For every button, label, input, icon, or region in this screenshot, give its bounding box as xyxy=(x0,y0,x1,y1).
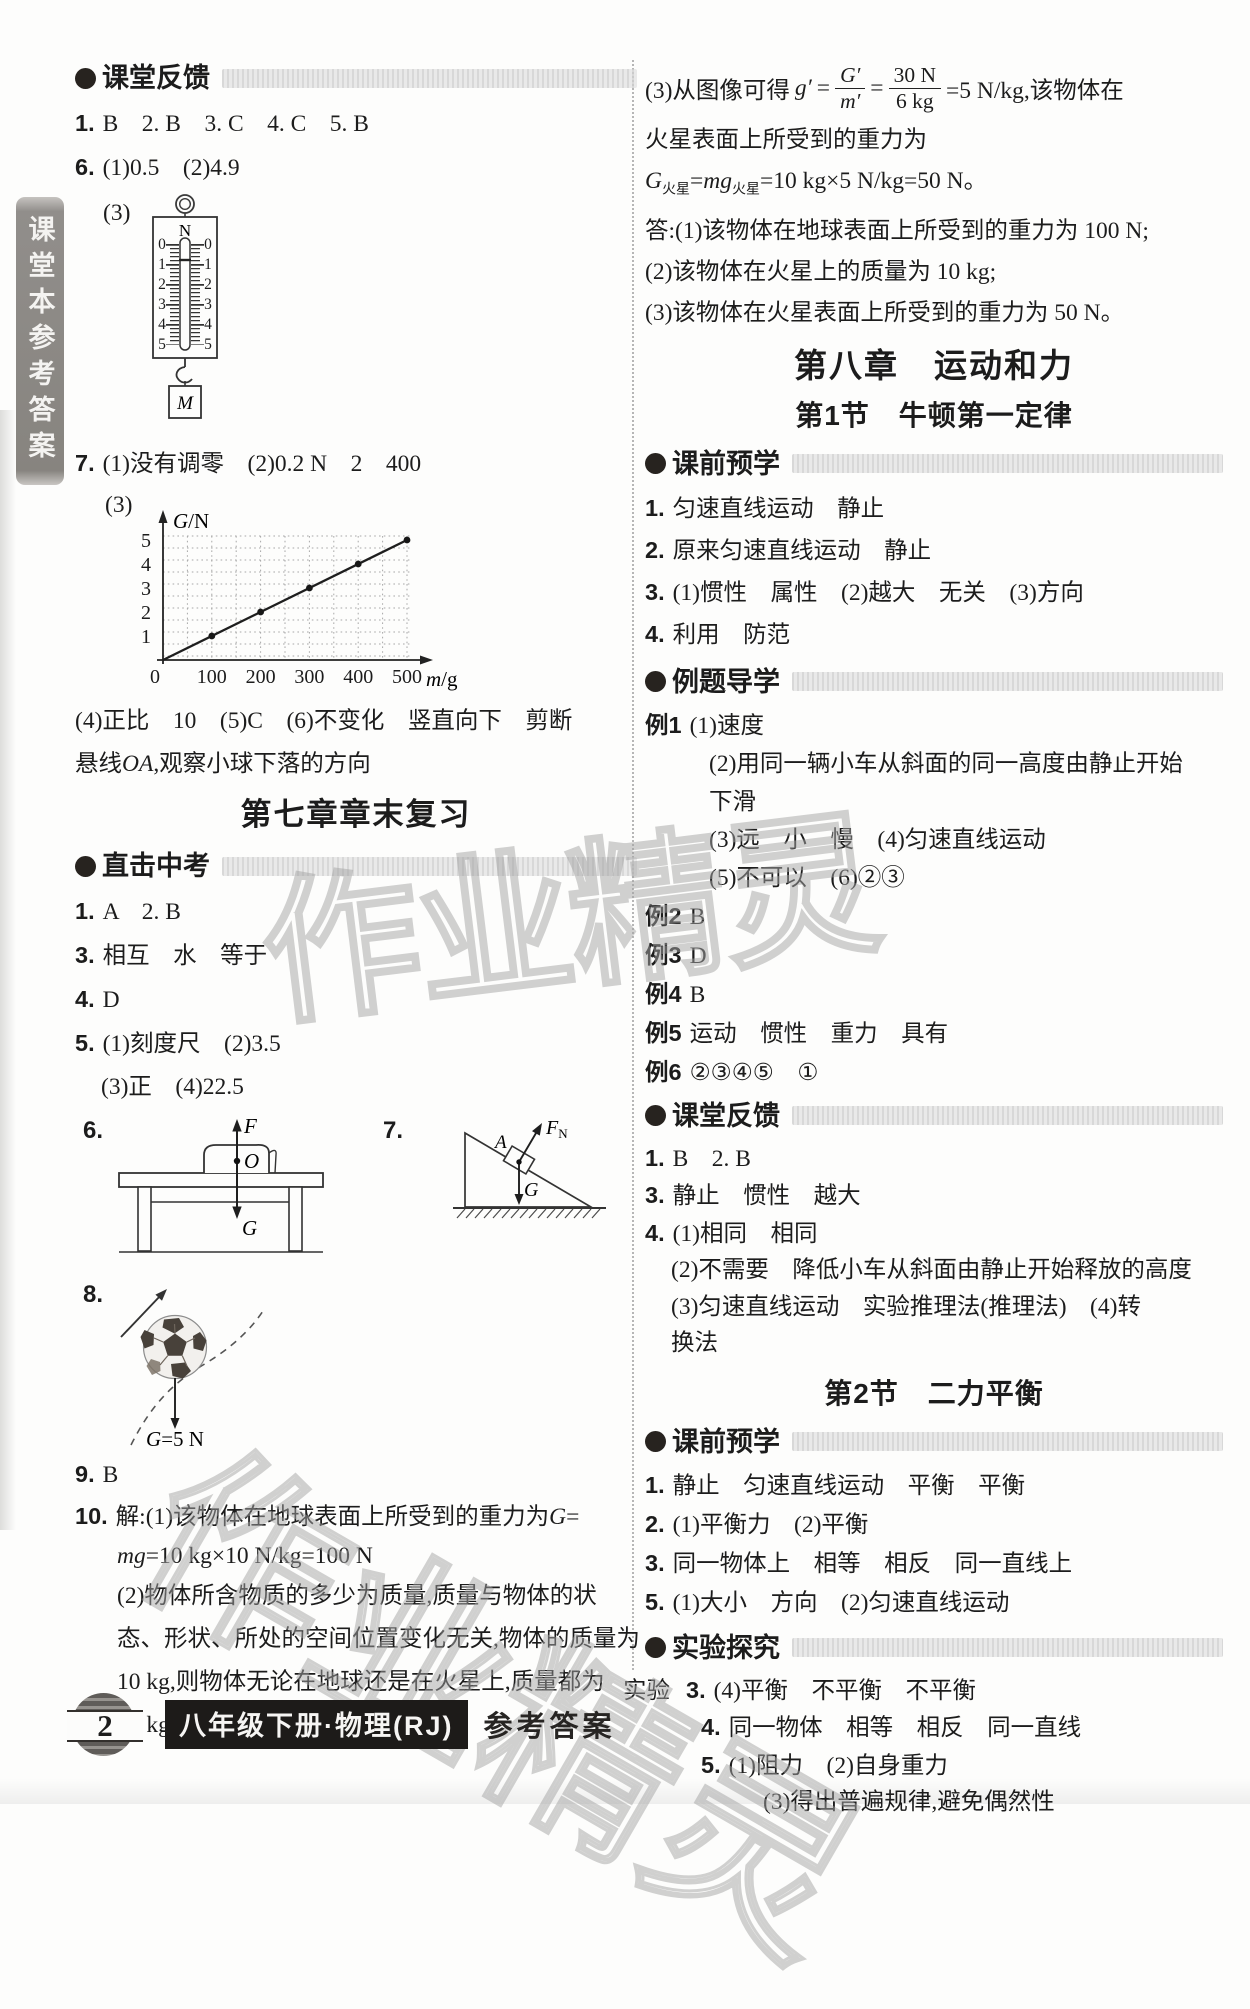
table-leg-left xyxy=(138,1187,151,1251)
svg-text:4: 4 xyxy=(158,316,166,333)
center-dot xyxy=(516,1159,521,1164)
book-page-curl xyxy=(269,1150,276,1173)
ground-hatching xyxy=(457,1209,600,1218)
answer-line: mg=10 kg×10 N/kg=100 N xyxy=(117,1537,637,1576)
svg-text:5: 5 xyxy=(204,336,212,353)
svg-text:2: 2 xyxy=(158,276,166,293)
answer-line: 9.B xyxy=(75,1453,637,1497)
svg-text:500: 500 xyxy=(392,666,422,688)
answer-lines: 9.B xyxy=(75,1453,637,1497)
answer-line: (5)不可以 (6)②③ xyxy=(709,859,1223,897)
weight-on-mars-line: G火星=mg火星=10 kg×5 N/kg=50 N。 xyxy=(645,161,1223,211)
section-bullet-icon xyxy=(645,671,666,692)
section-bullet-icon xyxy=(645,1431,666,1452)
answer-line: 火星表面上所受到的重力为 xyxy=(645,120,1223,161)
answer-line: 5.(1)刻度尺 (2)3.5 xyxy=(75,1022,637,1066)
figure-number: 6. xyxy=(83,1117,103,1145)
fraction: G′m′ xyxy=(835,63,865,113)
right-column: (3)从图像可得g′= G′m′ = 30 N6 kg =5 N/kg,该物体在… xyxy=(645,56,1223,1821)
answer-line: 1.A 2. B xyxy=(75,890,637,934)
answer-line: (3)该物体在火星表面上所受到的重力为 50 N。 xyxy=(645,293,1223,334)
answer-lines: 1.B 2. B 3. C 4. C 5. B6.(1)0.5 (2)4.9 xyxy=(75,102,637,190)
spring-rod xyxy=(180,238,190,350)
section-bullet-icon xyxy=(75,856,96,877)
svg-text:FN: FN xyxy=(545,1117,568,1141)
answer-line: 3.静止 惯性 越大 xyxy=(645,1177,1223,1215)
y-axis-arrow-icon xyxy=(159,510,168,523)
svg-text:m/g: m/g xyxy=(426,667,458,691)
section-bullet-icon xyxy=(645,1637,666,1658)
answer-line: 4.(1)相同 相同 xyxy=(645,1215,1223,1253)
svg-text:4: 4 xyxy=(141,554,151,576)
answer-line: 例3D xyxy=(645,936,1223,975)
answer-line: 4.同一物体 相等 相反 同一直线 xyxy=(701,1709,1223,1747)
answer-lines: 1.B 2. B3.静止 惯性 越大4.(1)相同 相同(2)不需要 降低小车从… xyxy=(645,1140,1223,1362)
section-header-preview-2: 课前预学 xyxy=(645,1424,1223,1460)
weight-label: M xyxy=(176,393,194,414)
sidebar-tab-label: 课堂本参考答案 xyxy=(21,215,60,467)
answer-lines: 1.静止 匀速直线运动 平衡 平衡2.(1)平衡力 (2)平衡3.同一物体上 相… xyxy=(645,1466,1223,1622)
answer-line: (3)匀速直线运动 实验推理法(推理法) (4)转 xyxy=(671,1289,1223,1326)
chapter7-review-title: 第七章章末复习 xyxy=(75,794,637,836)
sidebar-tab: 课堂本参考答案 xyxy=(16,197,64,485)
tabletop xyxy=(119,1173,323,1187)
force-f-label: F xyxy=(243,1115,257,1138)
answer-line: 5.(1)大小 方向 (2)匀速直线运动 xyxy=(645,1583,1223,1622)
x-axis-arrow-icon xyxy=(420,656,433,665)
weight-mass-graph: G/N m/g 010020030040050012345 xyxy=(123,490,458,694)
section-title: 课前预学 xyxy=(672,1424,780,1460)
answer-lines: (4)正比 10 (5)C (6)不变化 竖直向下 剪断 xyxy=(75,700,637,743)
section-title: 课前预学 xyxy=(672,446,780,482)
svg-text:5: 5 xyxy=(141,530,151,552)
left-column: 课堂反馈 1.B 2. B 3. C 4. C 5. B6.(1)0.5 (2)… xyxy=(75,52,637,1747)
answer-line: 4.利用 防范 xyxy=(645,614,1223,656)
answer-line: 例6②③④⑤ ① xyxy=(645,1053,1223,1092)
book-title-box: 八年级下册·物理(RJ) xyxy=(165,1700,468,1749)
figure-8-row: 8. G=5 N xyxy=(75,1277,637,1453)
section-title: 课堂反馈 xyxy=(102,60,210,96)
answer-line: 4.D xyxy=(75,978,637,1022)
answer-line: (2)不需要 降低小车从斜面由静止开始释放的高度 xyxy=(671,1252,1223,1289)
svg-text:5: 5 xyxy=(158,336,166,353)
svg-text:4: 4 xyxy=(204,316,212,333)
answer-lines: 实验3.(4)平衡 不平衡 不平衡4.同一物体 相等 相反 同一直线5.(1)阻… xyxy=(645,1672,1223,1821)
section-header-classroom-feedback-2: 课堂反馈 xyxy=(645,1098,1223,1134)
section-header-exam-link: 直击中考 xyxy=(75,848,637,884)
reference-answers-label: 参考答案 xyxy=(484,1703,616,1745)
svg-text:1: 1 xyxy=(141,626,151,648)
svg-text:G/N: G/N xyxy=(173,509,209,533)
svg-text:1: 1 xyxy=(204,256,212,273)
answer-line: 例5运动 惯性 重力 具有 xyxy=(645,1014,1223,1053)
halftone-strip xyxy=(792,1106,1223,1125)
arrow-up-icon xyxy=(232,1119,241,1132)
halftone-strip xyxy=(222,857,637,876)
answer-line: 实验3.(4)平衡 不平衡 不平衡 xyxy=(623,1672,1223,1710)
svg-text:400: 400 xyxy=(343,666,373,688)
section1-title: 第1节 牛顿第一定律 xyxy=(645,396,1223,436)
svg-text:300: 300 xyxy=(294,666,324,688)
soccer-ball-gravity-diagram: G=5 N xyxy=(111,1277,306,1452)
figure-number: 7. xyxy=(383,1117,403,1145)
answer-lines: 1.A 2. B3.相互 水 等于4.D5.(1)刻度尺 (2)3.5(3)正 … xyxy=(75,890,637,1109)
answer-line: (4)正比 10 (5)C (6)不变化 竖直向下 剪断 xyxy=(75,700,637,743)
answer-line: 1.B 2. B 3. C 4. C 5. B xyxy=(75,102,637,146)
svg-text:3: 3 xyxy=(204,296,212,313)
hook-icon xyxy=(177,367,192,383)
section-bullet-icon xyxy=(645,1105,666,1126)
section-header-examples: 例题导学 xyxy=(645,664,1223,700)
arrow-down-icon xyxy=(232,1207,241,1220)
answer-line: 10.解:(1)该物体在地球表面上所受到的重力为G= xyxy=(75,1497,637,1537)
point-o-label: O xyxy=(244,1149,259,1173)
answer-line: 1.B 2. B xyxy=(645,1140,1223,1178)
answer-line: 7.(1)没有调零 (2)0.2 N 2 400 xyxy=(75,442,637,486)
weight-mass-graph-figure: (3) G/N m/g 010020030040050012345 xyxy=(75,490,637,694)
hanging-ring-icon xyxy=(176,195,194,213)
chapter8-title: 第八章 运动和力 xyxy=(645,342,1223,390)
page-number-badge: 2 xyxy=(72,1693,135,1756)
answer-line: (2)物体所含物质的多少为质量,质量与物体的状 xyxy=(117,1575,637,1618)
formula-line: (3)从图像可得g′= G′m′ = 30 N6 kg =5 N/kg,该物体在 xyxy=(645,56,1223,120)
svg-text:100: 100 xyxy=(197,666,227,688)
svg-text:3: 3 xyxy=(158,296,166,313)
block-a-label: A xyxy=(493,1132,507,1153)
point-o-dot xyxy=(234,1158,240,1164)
answer-line: 3.(1)惯性 属性 (2)越大 无关 (3)方向 xyxy=(645,572,1223,614)
halftone-strip xyxy=(792,454,1223,473)
answer-line: (3)得出普遍规律,避免偶然性 xyxy=(763,1784,1223,1821)
table-leg-right xyxy=(289,1187,302,1251)
halftone-strip xyxy=(792,1638,1223,1657)
section2-title: 第2节 二力平衡 xyxy=(645,1374,1223,1414)
answer-line: 例4B xyxy=(645,975,1223,1014)
section-title: 实验探究 xyxy=(672,1630,780,1666)
section-bullet-icon xyxy=(75,68,96,89)
svg-text:2: 2 xyxy=(141,602,151,624)
section-title: 直击中考 xyxy=(102,848,210,884)
answer-line: 换法 xyxy=(671,1325,1223,1362)
answer-line: 例2B xyxy=(645,897,1223,936)
answer-line: 3.相互 水 等于 xyxy=(75,934,637,978)
answer-line: (2)用同一辆小车从斜面的同一高度由静止开始 xyxy=(709,745,1223,783)
answer-line: 2.(1)平衡力 (2)平衡 xyxy=(645,1505,1223,1544)
svg-text:2: 2 xyxy=(204,276,212,293)
answer-lines: 火星表面上所受到的重力为 xyxy=(645,120,1223,161)
halftone-strip xyxy=(792,672,1223,691)
answer-lines: 1.匀速直线运动 静止2.原来匀速直线运动 静止3.(1)惯性 属性 (2)越大… xyxy=(645,488,1223,656)
section-bullet-icon xyxy=(645,453,666,474)
answer-line: 下滑 xyxy=(709,783,1223,821)
answer-line: 态、形状、所处的空间位置变化无关,物体的质量为 xyxy=(117,1618,637,1661)
figures-6-7-row: 6. F O G 7. xyxy=(75,1115,637,1267)
halftone-strip xyxy=(222,69,637,88)
answer-line: 1.匀速直线运动 静止 xyxy=(645,488,1223,530)
halftone-strip xyxy=(792,1432,1223,1451)
svg-text:200: 200 xyxy=(246,666,276,688)
svg-text:3: 3 xyxy=(141,578,151,600)
answer-line: 例1(1)速度 xyxy=(645,706,1223,745)
answer-line: (3)正 (4)22.5 xyxy=(101,1066,637,1109)
svg-text:1: 1 xyxy=(158,256,166,273)
answer-line: 答:(1)该物体在地球表面上所受到的重力为 100 N; xyxy=(645,211,1223,252)
answer-line: 悬线OA,观察小球下落的方向 xyxy=(75,743,637,786)
svg-text:0: 0 xyxy=(150,666,160,688)
answer-line: (2)该物体在火星上的质量为 10 kg; xyxy=(645,252,1223,293)
answer-lines: 例1(1)速度(2)用同一辆小车从斜面的同一高度由静止开始下滑(3)远 小 慢 … xyxy=(645,706,1223,1092)
book-on-table-force-diagram: F O G xyxy=(117,1115,329,1265)
svg-text:0: 0 xyxy=(204,236,212,253)
page-footer: 2 八年级下册·物理(RJ) 参考答案 xyxy=(72,1692,616,1756)
answer-line: 6.(1)0.5 (2)4.9 xyxy=(75,146,637,190)
arrow-up-right-icon xyxy=(532,1123,542,1136)
section-header-classroom-feedback: 课堂反馈 xyxy=(75,60,637,96)
workbook-answer-page: { "sidebar": {"label": "课堂本参考答案"}, "wate… xyxy=(0,0,1250,1804)
figure-number: 8. xyxy=(83,1281,103,1309)
sub-question-label: (3) xyxy=(103,200,130,227)
answer-line: 2.原来匀速直线运动 静止 xyxy=(645,530,1223,572)
answer-lines: 答:(1)该物体在地球表面上所受到的重力为 100 N;(2)该物体在火星上的质… xyxy=(645,211,1223,334)
page-edge-shadow xyxy=(0,410,16,1530)
answer-line: (3)远 小 慢 (4)匀速直线运动 xyxy=(709,821,1223,859)
gravity-value-label: G=5 N xyxy=(146,1427,204,1451)
unit-label: N xyxy=(179,221,191,240)
spring-scale-diagram: N 0 1 2 3 4 5 0 1 2 3 4 5 xyxy=(139,192,231,442)
gravity-label: G xyxy=(524,1179,539,1201)
answer-line: 3.同一物体上 相等 相反 同一直线上 xyxy=(645,1544,1223,1583)
svg-text:0: 0 xyxy=(158,236,166,253)
section-title: 例题导学 xyxy=(672,664,780,700)
gravity-label: G xyxy=(242,1216,257,1240)
spring-scale-figure: (3) N 0 1 2 3 4 5 0 1 2 3 xyxy=(75,192,637,442)
section-header-preview: 课前预学 xyxy=(645,446,1223,482)
incline-block-force-diagram: A FN G xyxy=(415,1115,610,1223)
answer-line: 1.静止 匀速直线运动 平衡 平衡 xyxy=(645,1466,1223,1505)
answer-lines: 7.(1)没有调零 (2)0.2 N 2 400 xyxy=(75,442,637,486)
fraction: 30 N6 kg xyxy=(889,63,941,113)
section-header-experiment: 实验探究 xyxy=(645,1630,1223,1666)
answer-line: 5.(1)阻力 (2)自身重力 xyxy=(701,1747,1223,1785)
page-number: 2 xyxy=(67,1710,143,1742)
section-title: 课堂反馈 xyxy=(672,1098,780,1134)
